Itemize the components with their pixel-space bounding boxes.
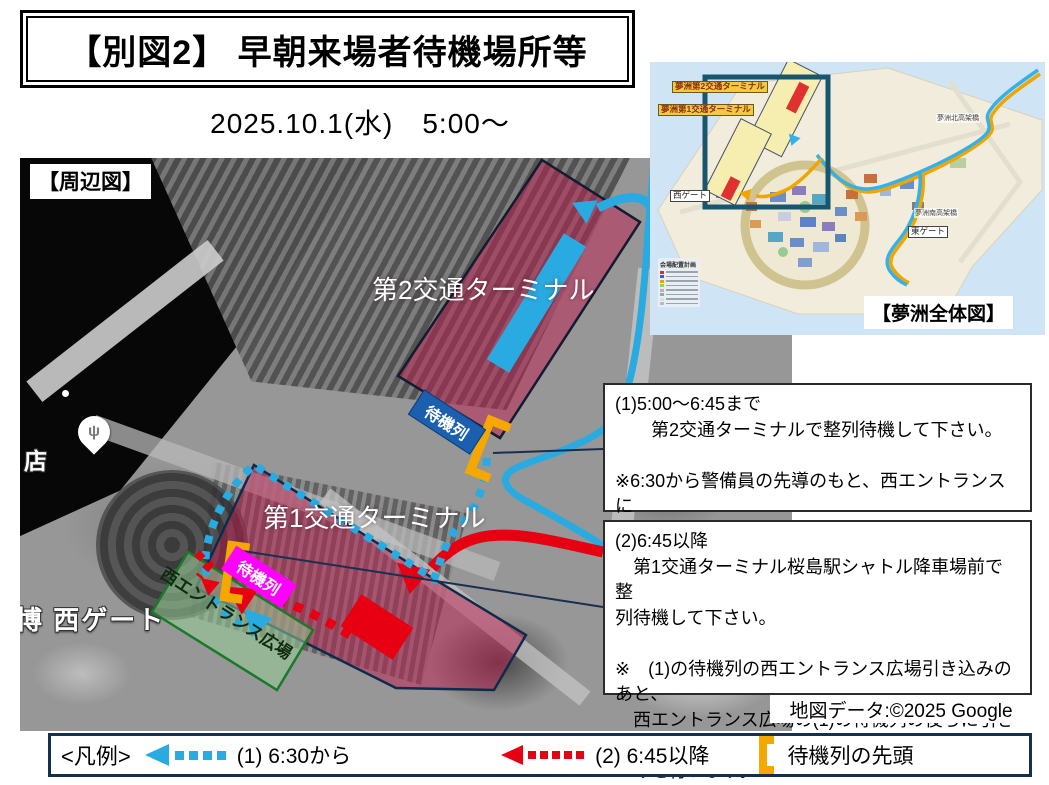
legend-item-3: 待機列の先頭 — [787, 740, 913, 770]
utensils-glyph: ψ — [78, 416, 110, 448]
plan-row — [660, 284, 698, 287]
inset-plan-legend: 会場配置計画 — [658, 258, 700, 307]
page: 【別図2】 早朝来場者待機場所等 2025.10.1(水) 5:00～ — [0, 0, 1049, 785]
inset-south-bridge-label: 夢洲南高架橋 — [914, 208, 958, 218]
legend-item-2: (2) 6:45以降 — [595, 740, 709, 770]
legend-title: <凡例> — [61, 739, 131, 771]
plan-row — [660, 271, 698, 274]
inset-caption: 【夢洲全体図】 — [864, 296, 1013, 329]
legend-blue-arrow-icon — [145, 743, 229, 767]
note-box-1: (1)5:00～6:45まで 第2交通ターミナルで整列待機して下さい。 ※6:3… — [603, 383, 1032, 512]
west-gate-map-label: 博 西ゲート — [20, 600, 165, 637]
legend-queue-head-icon — [757, 736, 779, 774]
inset-north-bridge-label: 夢洲北高架橋 — [936, 113, 980, 123]
inset-east-gate-label: 東ゲート — [908, 226, 948, 238]
legend-item-1: (1) 6:30から — [237, 740, 351, 770]
plan-row — [660, 298, 698, 301]
map-attribution: 地図データ:©2025 Google — [770, 695, 1032, 723]
legend-red-arrow-icon — [501, 744, 587, 766]
shuttle-route-red-line — [432, 535, 603, 568]
plan-row — [660, 280, 698, 283]
poi-dot — [62, 390, 69, 397]
event-datetime: 2025.10.1(水) 5:00～ — [80, 102, 640, 142]
inset-terminal2-label: 夢洲第2交通ターミナル — [672, 81, 768, 93]
restaurant-pin-icon: ψ — [71, 409, 116, 454]
terminal1-label: 第1交通ターミナル — [263, 498, 485, 535]
terminal2-label: 第2交通ターミナル — [372, 270, 594, 307]
inset-west-gate-label: 西ゲート — [670, 190, 710, 202]
inset-plan-title: 会場配置計画 — [660, 260, 698, 269]
plan-row — [660, 275, 698, 278]
legend-bar: <凡例> (1) 6:30から (2) 6:45以降 待機列の先頭 — [48, 733, 1032, 777]
inset-terminal1-label: 夢洲第1交通ターミナル — [658, 104, 754, 116]
map-caption-chip: 【周辺図】 — [30, 164, 151, 199]
shop-map-label: 店 — [24, 442, 47, 476]
page-title: 【別図2】 早朝来場者待機場所等 — [67, 25, 587, 74]
overview-inset-map: 夢洲第2交通ターミナル 夢洲第1交通ターミナル 西ゲート 東ゲート 夢洲北高架橋… — [650, 62, 1045, 335]
plan-row — [660, 289, 698, 292]
title-box: 【別図2】 早朝来場者待機場所等 — [20, 10, 635, 88]
note-box-2: (2)6:45以降 第1交通ターミナル桜島駅シャトル降車場前で整 列待機して下さ… — [603, 520, 1032, 695]
plan-row — [660, 302, 698, 305]
title-inner-border: 【別図2】 早朝来場者待機場所等 — [26, 16, 629, 82]
plan-row — [660, 293, 698, 296]
